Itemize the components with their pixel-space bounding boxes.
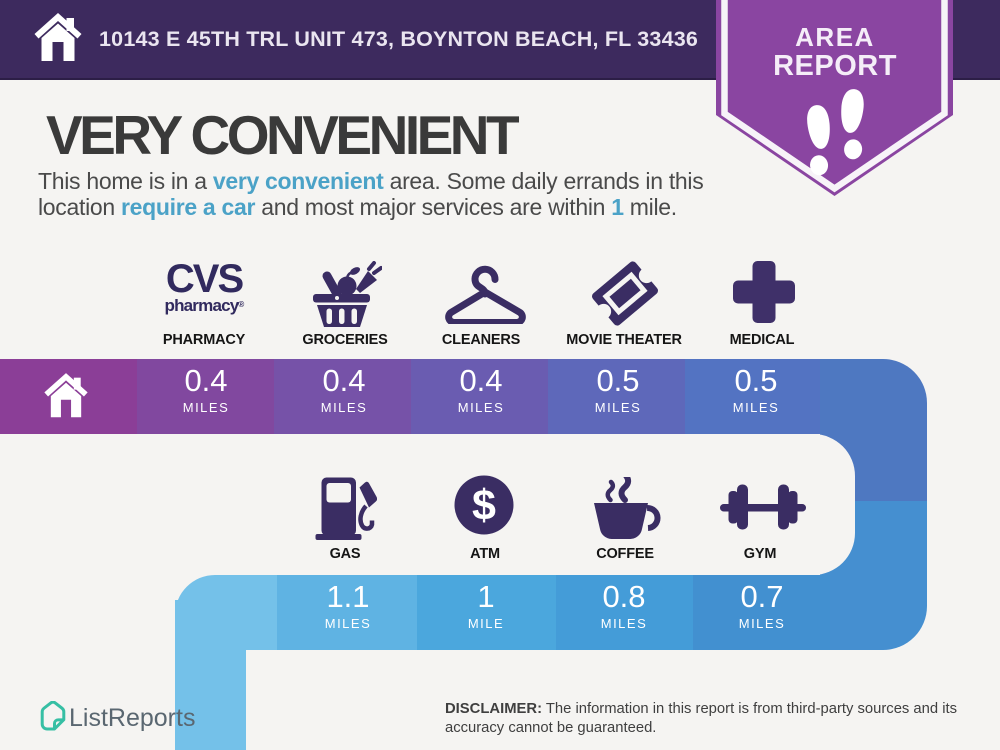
svg-text:AREA: AREA [795,22,875,52]
svg-text:REPORT: REPORT [773,50,897,82]
svg-text:$: $ [472,482,496,530]
